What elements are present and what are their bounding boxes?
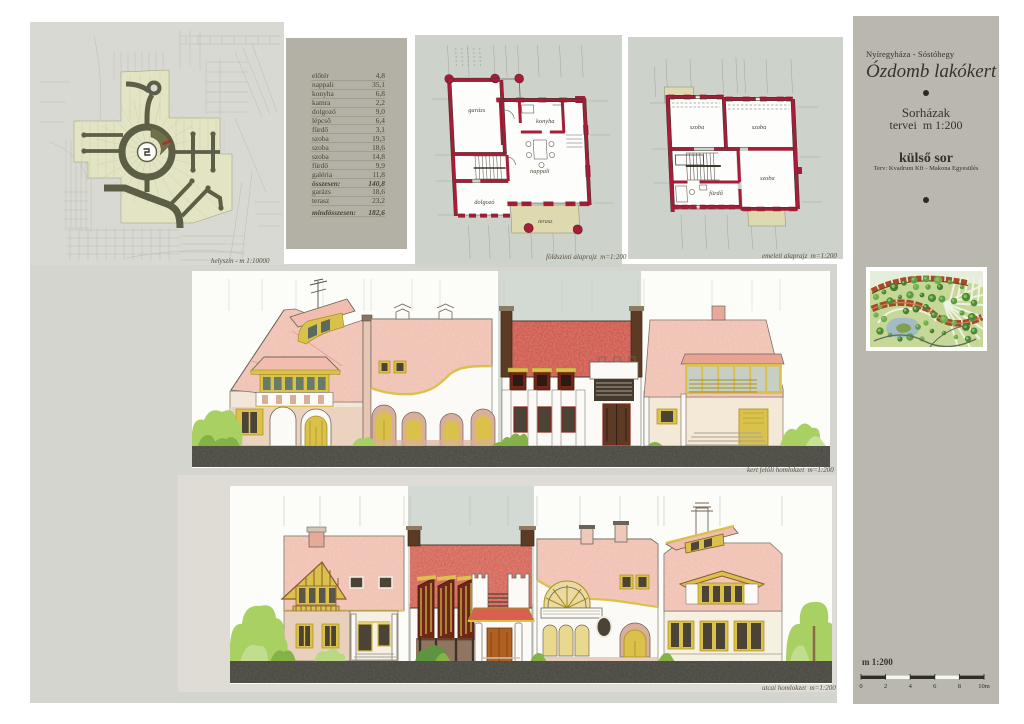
- svg-text:10m: 10m: [978, 683, 990, 690]
- svg-text:terasz: terasz: [538, 219, 553, 225]
- svg-text:dolgozó: dolgozó: [474, 199, 495, 206]
- svg-text:fürdő: fürdő: [709, 190, 724, 197]
- svg-text:2: 2: [884, 683, 887, 690]
- svg-text:szoba: szoba: [690, 124, 705, 131]
- svg-text:0: 0: [859, 683, 862, 690]
- svg-text:8: 8: [958, 683, 961, 690]
- svg-text:nappali: nappali: [530, 168, 550, 175]
- svg-text:garázs: garázs: [468, 107, 486, 114]
- svg-text:szoba: szoba: [760, 175, 775, 182]
- svg-text:konyha: konyha: [536, 118, 555, 125]
- svg-text:6: 6: [933, 683, 937, 690]
- svg-text:szoba: szoba: [752, 124, 767, 131]
- svg-text:4: 4: [909, 683, 913, 690]
